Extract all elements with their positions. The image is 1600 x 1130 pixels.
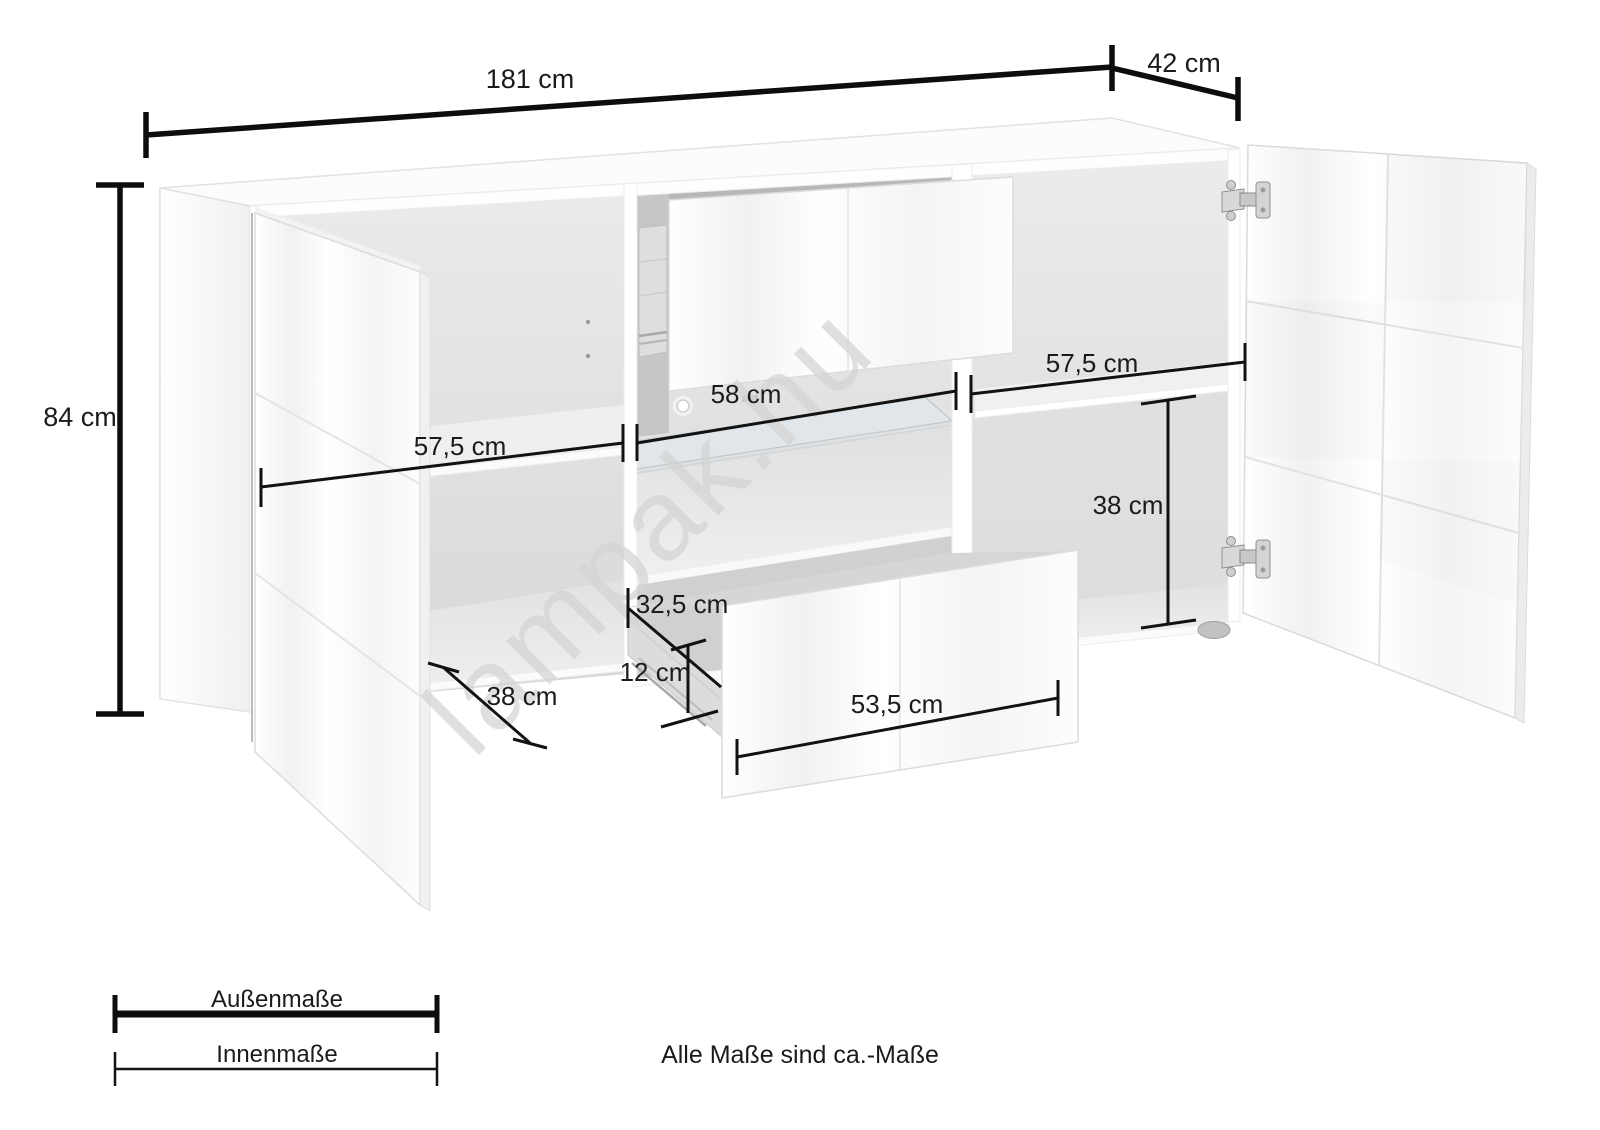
right-compartment-width-label: 57,5 cm [1046,348,1139,378]
dimension-width-label: 181 cm [486,64,575,94]
hinge-screw-lug [1227,212,1236,221]
drawer-height-label: 12 cm [620,657,691,687]
shelf-pin-hole [586,320,590,324]
hinge-screw-lug [1227,537,1236,546]
dimension-height: 84 cm [43,185,144,714]
drawer-front-width-label: 53,5 cm [851,689,944,719]
top-drawer-box-side [639,225,667,357]
legend-inner-dimensions: Innenmaße [115,1041,437,1086]
sideboard-dimension-diagram: lampak.hu 181 cm 42 cm 84 cm 57,5 [0,0,1600,1130]
diagram-page: lampak.hu 181 cm 42 cm 84 cm 57,5 [0,0,1600,1130]
left-door-face [255,213,420,905]
sideboard-illustration [160,118,1536,911]
right-door-panel-shade [1245,301,1384,459]
cabinet-foot [1198,622,1230,639]
cabinet-left-side-panel [160,188,250,712]
shelf-pin-hole [586,354,590,358]
dimension-depth-label: 42 cm [1147,48,1221,78]
measurement-note: Alle Maße sind ca.-Maße [661,1041,939,1069]
middle-shelf-width-label: 58 cm [711,379,782,409]
dimension-depth: 42 cm [1112,48,1238,121]
legend-outer-dimensions: Außenmaße [115,986,437,1033]
legend-inner-label: Innenmaße [216,1041,337,1068]
hinge-screw [1261,568,1266,573]
right-door-panel-shade [1385,154,1527,303]
left-compartment-width-label: 57,5 cm [414,431,507,461]
dimension-height-label: 84 cm [43,402,117,432]
hinge-screw [1261,546,1266,551]
drawer-depth-label: 32,5 cm [636,589,729,619]
left-door [252,207,430,911]
legend: Außenmaße Innenmaße Alle Maße sind ca.-M… [115,986,939,1086]
left-door-thickness-edge [420,272,430,911]
legend-outer-label: Außenmaße [211,986,343,1013]
right-door [1243,145,1536,723]
hinge-screw [1261,208,1266,213]
hinge-top [1222,181,1270,221]
hinge-screw-lug [1227,568,1236,577]
left-compartment-depth-label: 38 cm [487,681,558,711]
hinge-screw [1261,188,1266,193]
right-compartment-height-label: 38 cm [1093,490,1164,520]
hinge-screw-lug [1227,181,1236,190]
hinge-door-plate [1256,182,1270,218]
